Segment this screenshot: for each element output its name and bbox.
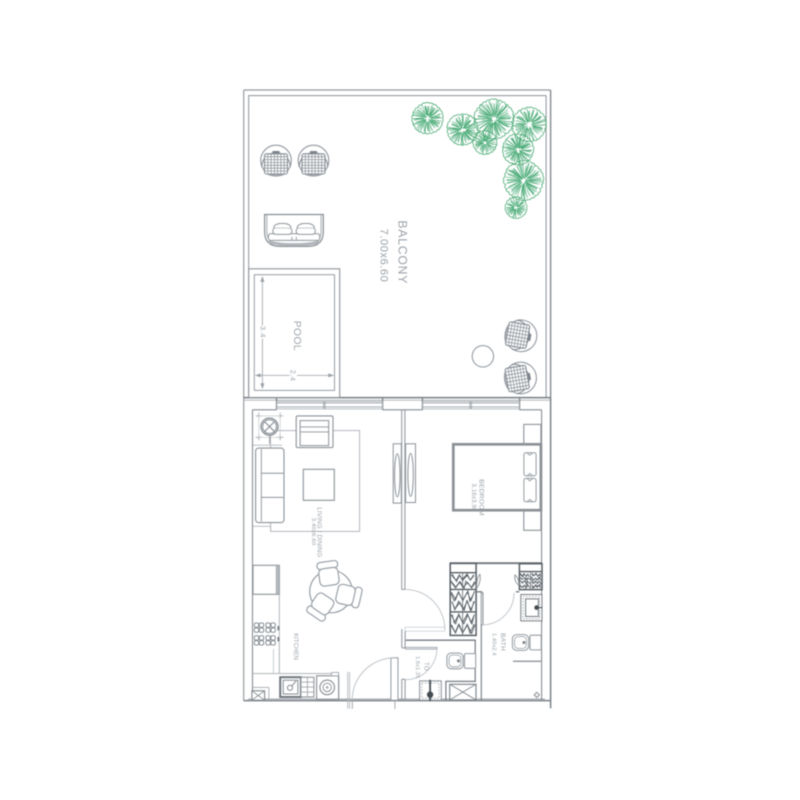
svg-text:7.00x6.60: 7.00x6.60 — [378, 229, 390, 283]
svg-text:1.40x2.4: 1.40x2.4 — [491, 633, 497, 656]
svg-text:TO: TO — [422, 662, 429, 671]
svg-text:3.40x6.60: 3.40x6.60 — [310, 518, 316, 546]
svg-text:POOL: POOL — [291, 321, 302, 351]
svg-text:BEDROOM: BEDROOM — [478, 479, 485, 516]
svg-text:3.4: 3.4 — [258, 326, 267, 338]
svg-text:BATH: BATH — [499, 633, 506, 651]
svg-text:3.16x3.90: 3.16x3.90 — [470, 483, 476, 512]
svg-text:KITCHEN: KITCHEN — [292, 633, 298, 660]
svg-text:BALCONY: BALCONY — [395, 220, 409, 284]
svg-text:2.4: 2.4 — [289, 370, 298, 382]
svg-text:1.6x1.35: 1.6x1.35 — [414, 656, 420, 678]
